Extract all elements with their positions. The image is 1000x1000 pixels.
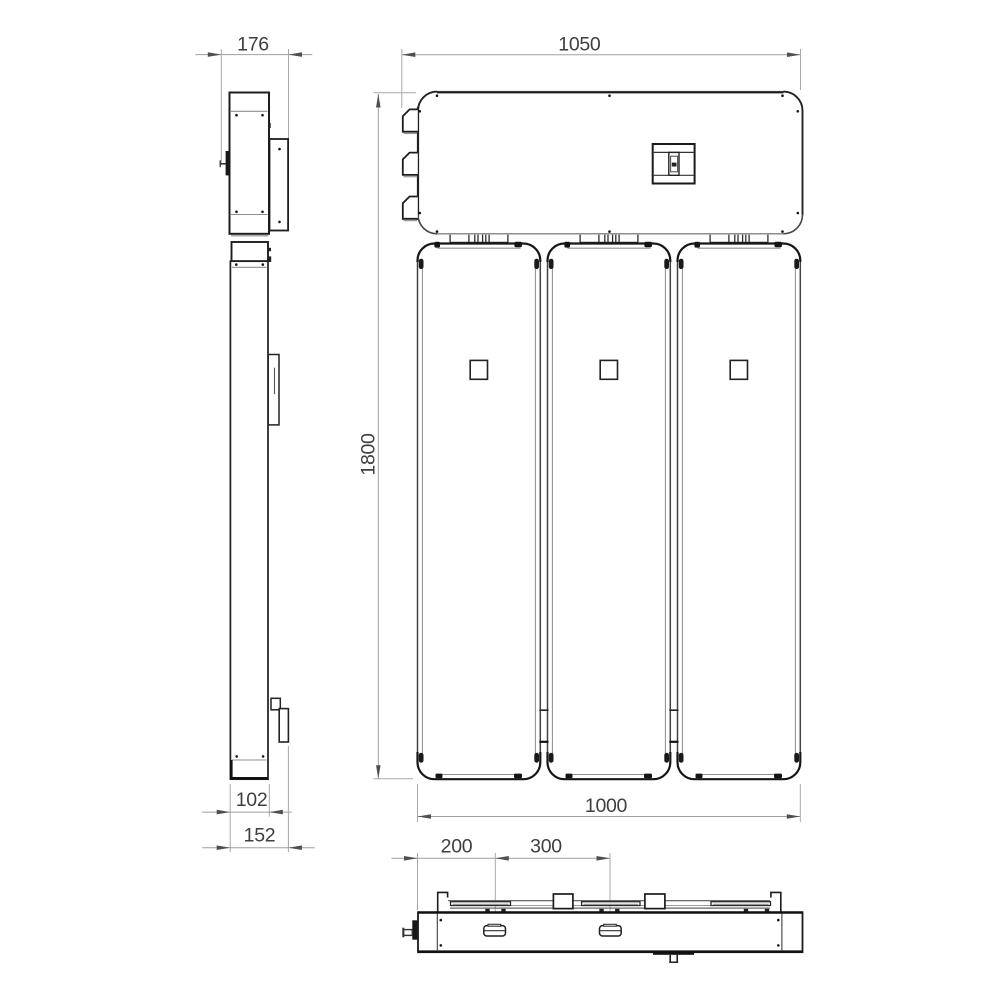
svg-text:200: 200 xyxy=(441,835,473,857)
svg-text:1000: 1000 xyxy=(585,795,628,817)
svg-text:102: 102 xyxy=(236,789,268,811)
svg-text:1050: 1050 xyxy=(558,34,601,56)
svg-text:176: 176 xyxy=(237,34,269,56)
svg-text:300: 300 xyxy=(530,835,562,857)
svg-text:1800: 1800 xyxy=(358,433,380,476)
svg-text:152: 152 xyxy=(244,825,276,847)
